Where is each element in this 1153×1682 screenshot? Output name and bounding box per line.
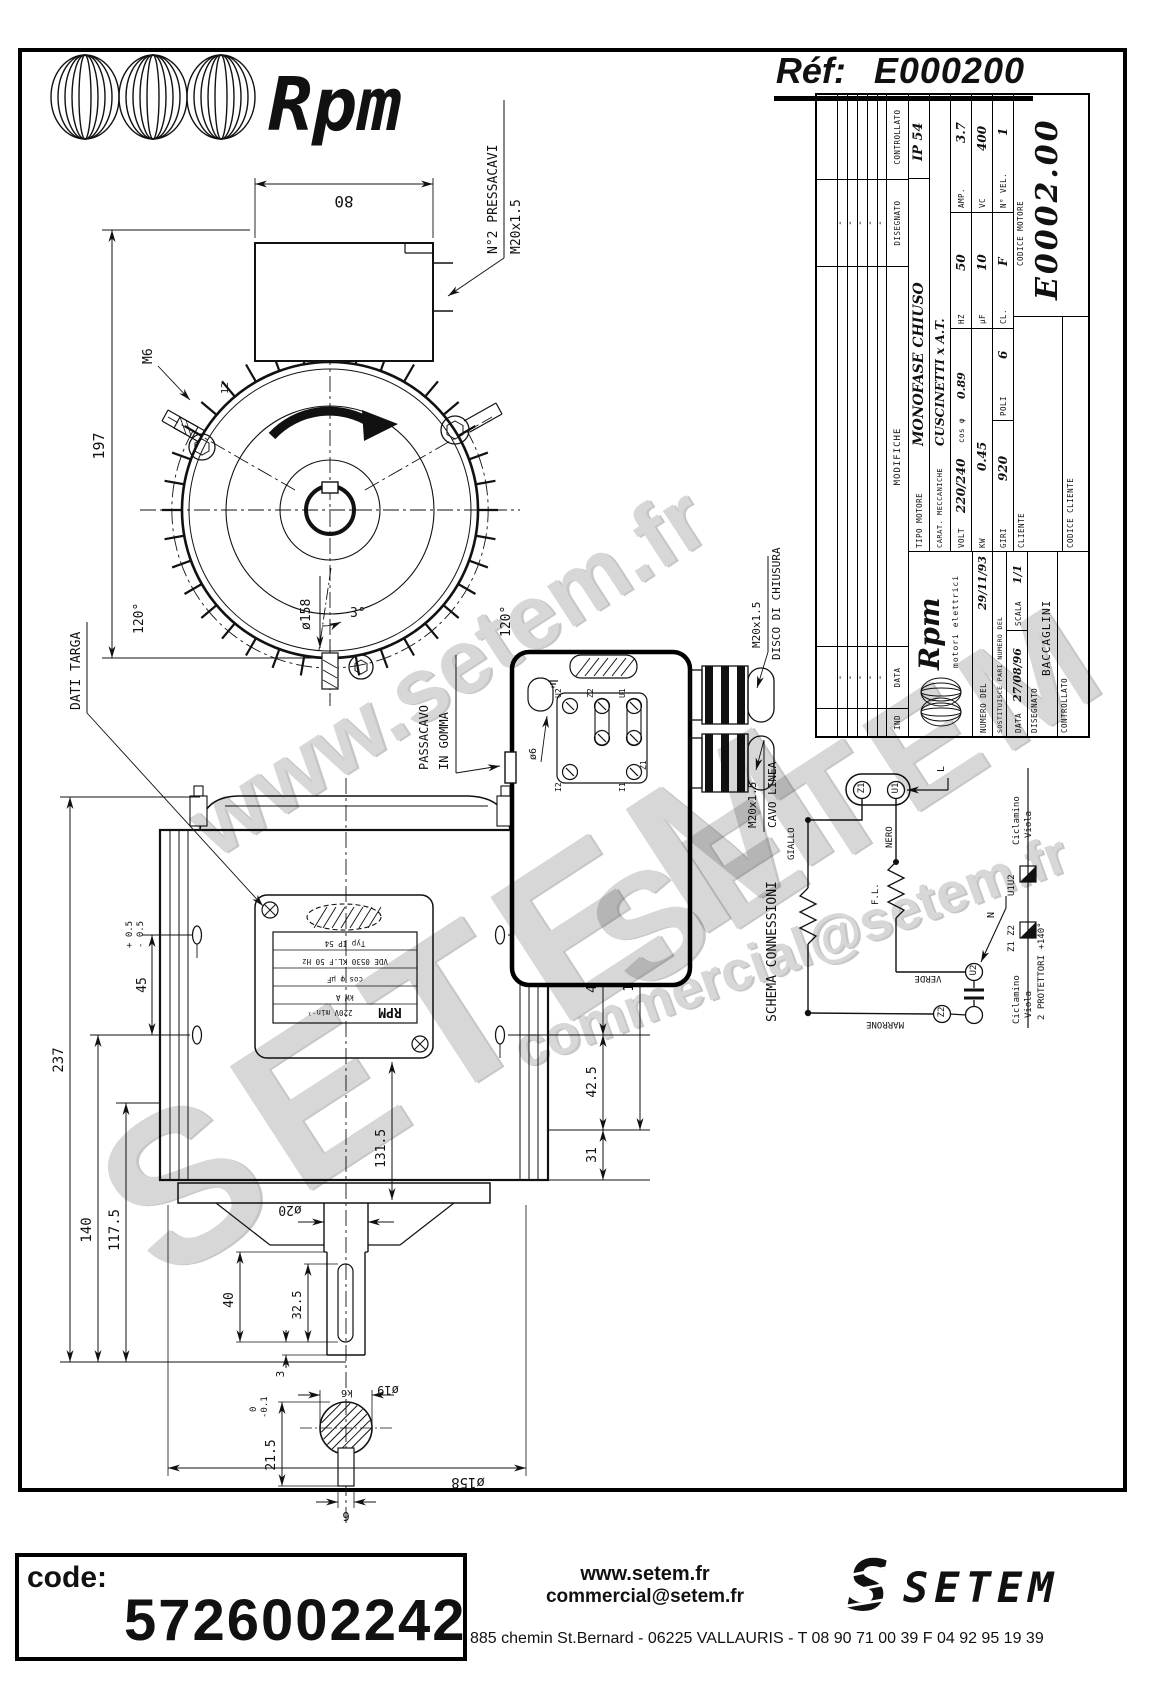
- terminal-i1: I1: [618, 782, 627, 792]
- nameplate-logo: RPM: [378, 1004, 402, 1019]
- schema-prot-top-1: Ciclamino: [1012, 796, 1022, 845]
- titleblock-logo-text: Rpm: [913, 598, 946, 670]
- nvel-label: N° VEL.: [999, 173, 1008, 208]
- titleblock-logo: Rpm motori elettrici: [909, 551, 973, 736]
- numero-del-value: 29/11/93: [976, 556, 989, 610]
- code-value: 5726002242: [124, 1587, 467, 1654]
- schema-u1: U1: [891, 783, 901, 794]
- schema-prot-bottom-2: Viola: [1024, 991, 1034, 1018]
- schema-prot-z1z2: Z1 Z2: [1007, 925, 1017, 952]
- dim-45-left: 45: [135, 977, 150, 993]
- sostituisce-label: SOSTITUISCE PARI NUMERO DEL: [996, 617, 1004, 733]
- label-gland-top-name: DISCO DI CHIUSURA: [770, 547, 783, 660]
- dim-shaft-20: ø20: [278, 1202, 301, 1217]
- giri-value: 920: [996, 456, 1010, 481]
- schema-l: L: [936, 766, 947, 772]
- nameplate: Typ IP 54 VDE 0530 KL.F 50 Hz cos φ μF k…: [255, 895, 433, 1058]
- label-pressacavi-2: M20x1.5: [509, 199, 524, 254]
- dim-m6: M6: [141, 348, 156, 364]
- titleblock-data: TIPO MOTORE MONOFASE CHIUSO IP 54 CARAT.…: [909, 95, 1088, 551]
- schema-verde: VERDE: [914, 973, 941, 983]
- kw-label: KW: [978, 538, 987, 548]
- schema-prot-u1u2: U1U2: [1007, 874, 1017, 896]
- schema-marrone: MARRONE: [866, 1019, 904, 1029]
- uf-value: 10: [975, 254, 989, 271]
- schema-z2: Z2: [937, 1007, 947, 1018]
- vc-value: 400: [975, 126, 989, 151]
- poli-label: POLI: [999, 396, 1008, 416]
- rpm-coils: [51, 55, 255, 139]
- rpm-logo-text: Rpm: [268, 62, 402, 148]
- dim-12: 12: [220, 382, 231, 394]
- label-passacavo-1: PASSACAVO: [417, 705, 431, 770]
- dim-120-right: 120°: [499, 606, 514, 637]
- terminal-z1: Z1: [639, 760, 648, 770]
- dim-6: 6: [342, 1509, 349, 1523]
- dim-158-front: ø158: [299, 599, 314, 630]
- header-disegnato: DISEGNATO: [887, 179, 909, 266]
- controllato-label: CONTROLLATO: [1060, 678, 1069, 733]
- terminal-i2: I2: [554, 782, 563, 792]
- dim-131-5: 131.5: [374, 1129, 389, 1168]
- dim-80: 80: [334, 192, 353, 211]
- terminal-z2: Z2: [586, 688, 595, 698]
- dim-45-tol-minus: - 0.5: [136, 921, 146, 948]
- footer-site: www.setem.fr: [520, 1563, 770, 1586]
- schema-prot-top-2: Viola: [1024, 811, 1034, 838]
- cable-gland-bottom: [690, 734, 774, 792]
- nameplate-row-4: kW A: [335, 993, 354, 1002]
- label-gland-bottom-size: M20x1.5: [746, 782, 759, 828]
- stud-top-left: [162, 410, 215, 460]
- revision-strip: - - - - - - - - - -: [817, 95, 887, 736]
- volt-value: 220/240: [954, 459, 968, 513]
- dim-21-5: 21.5: [264, 1439, 279, 1470]
- amp-value: 3.7: [954, 122, 968, 143]
- uf-label: μF: [978, 314, 987, 324]
- data-value: 27/08/96: [1011, 648, 1024, 702]
- dim-hole-6: ø6: [528, 748, 539, 760]
- hz-value: 50: [954, 254, 968, 271]
- titleblock-logo-sub: motori elettrici: [951, 575, 960, 668]
- dim-42-5: 42.5: [585, 1066, 600, 1097]
- dim-40: 40: [222, 1292, 237, 1308]
- dim-19: ø19: [377, 1383, 399, 1397]
- tipo-motore-value: MONOFASE CHIUSO: [911, 282, 927, 446]
- terminal-u2: U2: [554, 688, 563, 698]
- cliente-label: CLIENTE: [1017, 513, 1026, 548]
- setem-logo: S SETEM: [845, 1548, 1135, 1628]
- dim-197: 197: [90, 432, 108, 459]
- dim-3deg: 3°: [350, 606, 366, 621]
- poli-value: 6: [996, 351, 1010, 359]
- scala-value: 1/1: [1011, 565, 1024, 584]
- disegnato-value: BACCAGLINI: [1040, 600, 1053, 676]
- schema-title: SCHEMA CONNESSIONI: [765, 881, 780, 1022]
- front-view: 80 N°2 PRESSACAVI M20x1.5 197 M6 12: [90, 100, 524, 706]
- carat-value: CUSCINETTI x A.T.: [933, 318, 947, 446]
- cl-value: F: [996, 257, 1010, 266]
- dim-31-bottom: 31: [585, 1147, 600, 1163]
- disegnato-label: DISEGNATO: [1030, 688, 1039, 733]
- rpm-logo: Rpm: [30, 45, 500, 155]
- cos-value: 0.89: [955, 372, 968, 399]
- cl-label: CL.: [999, 309, 1008, 324]
- nameplate-row-1: Typ IP 54: [324, 939, 365, 948]
- codice-motore-value: E0002.00: [1030, 117, 1065, 300]
- setem-logo-text: SETEM: [903, 1563, 1059, 1612]
- stud-bottom: [322, 653, 373, 689]
- hz-label: HZ: [957, 314, 966, 324]
- header-controllato: CONTROLLATO: [887, 95, 909, 179]
- codice-cliente-label: CODICE CLIENTE: [1066, 478, 1075, 548]
- kw-value: 0.45: [975, 442, 989, 471]
- schema-z1: Z1: [857, 783, 867, 794]
- schema-nero: NERO: [885, 826, 895, 848]
- header-ind: IND: [887, 708, 909, 736]
- label-passacavo-2: IN GOMMA: [437, 711, 451, 770]
- label-dati-targa: DATI TARGA: [69, 632, 84, 710]
- header-data: DATA: [887, 646, 909, 708]
- title-block: - - - - - - - - - - IND DATA MODIFICHE D…: [815, 93, 1090, 738]
- dim-120-left: 120°: [132, 603, 147, 634]
- shaft-section-detail: 21.5 0 -0.1 ø19 k6 6 ø158: [168, 1205, 526, 1523]
- schema-u2: U2: [969, 965, 979, 976]
- footer-email: commercial@setem.fr: [520, 1586, 770, 1608]
- code-label: code:: [27, 1561, 107, 1595]
- label-gland-top-size: M20x1.5: [750, 602, 763, 648]
- label-gland-bottom-name: CAVO LINEA: [766, 761, 779, 828]
- dim-21-5-tol1: -0.1: [260, 1396, 270, 1418]
- volt-label: VOLT: [957, 528, 966, 548]
- dim-21-5-tol0: 0: [249, 1407, 259, 1412]
- nameplate-row-3: cos φ μF: [326, 975, 363, 984]
- header-modifiche: MODIFICHE: [887, 266, 909, 646]
- nameplate-row-2: VDE 0530 KL.F 50 Hz: [302, 957, 388, 966]
- dim-45-tol-plus: + 0.5: [125, 921, 135, 948]
- titleblock-left: Rpm motori elettrici NUMERO DEL 29/11/93…: [909, 551, 1088, 736]
- schema-giallo: GIALLO: [787, 827, 797, 860]
- ip-value: IP 54: [911, 123, 926, 161]
- data-label: DATA: [1014, 713, 1023, 733]
- dim-237: 237: [51, 1047, 67, 1072]
- schema-n: N: [986, 912, 997, 918]
- dim-158-bottom: ø158: [451, 1474, 485, 1490]
- code-box: code: 5726002242: [15, 1553, 467, 1661]
- amp-label: AMP.: [957, 188, 966, 208]
- numero-del-label: NUMERO DEL: [979, 683, 988, 733]
- dim-32-5: 32.5: [290, 1291, 304, 1320]
- vc-label: VC: [978, 198, 987, 208]
- nameplate-row-5: 220V min⁻¹: [307, 1008, 352, 1017]
- terminal-box-detail: U2 Z2 U1 I2 I1 Z1 ø6 M20x1.5 DISCO DI CH…: [417, 547, 783, 985]
- schema-prot-bottom-1: Ciclamino: [1012, 975, 1022, 1024]
- schema-fl: F.L.: [871, 883, 881, 905]
- footer-address: 885 chemin St.Bernard - 06225 VALLAURIS …: [470, 1630, 1070, 1648]
- codice-motore-label: CODICE MOTORE: [1016, 201, 1025, 266]
- schema-prot-label: 2 PROTETTORI +140°: [1037, 922, 1047, 1020]
- terminal-u1: U1: [618, 688, 627, 698]
- dim-3: 3: [274, 1371, 287, 1378]
- giri-label: GIRI: [999, 528, 1008, 548]
- nvel-value: 1: [996, 128, 1010, 136]
- cos-label: cos φ: [957, 418, 966, 443]
- revision-headers: IND DATA MODIFICHE DISEGNATO CONTROLLATO: [887, 95, 909, 736]
- scala-label: SCALA: [1014, 601, 1023, 626]
- label-pressacavi-1: N°2 PRESSACAVI: [486, 144, 501, 254]
- tipo-motore-label: TIPO MOTORE: [915, 493, 924, 548]
- dim-140: 140: [79, 1217, 95, 1242]
- carat-label: CARAT. MECCANICHE: [936, 468, 944, 548]
- dim-117-5: 117.5: [107, 1209, 123, 1251]
- footer-contacts: www.setem.fr commercial@setem.fr: [520, 1563, 770, 1608]
- dim-k6: k6: [341, 1387, 353, 1398]
- wiring-schema: SCHEMA CONNESSIONI Z1 U1 L GIALLO NERO F…: [765, 766, 1047, 1029]
